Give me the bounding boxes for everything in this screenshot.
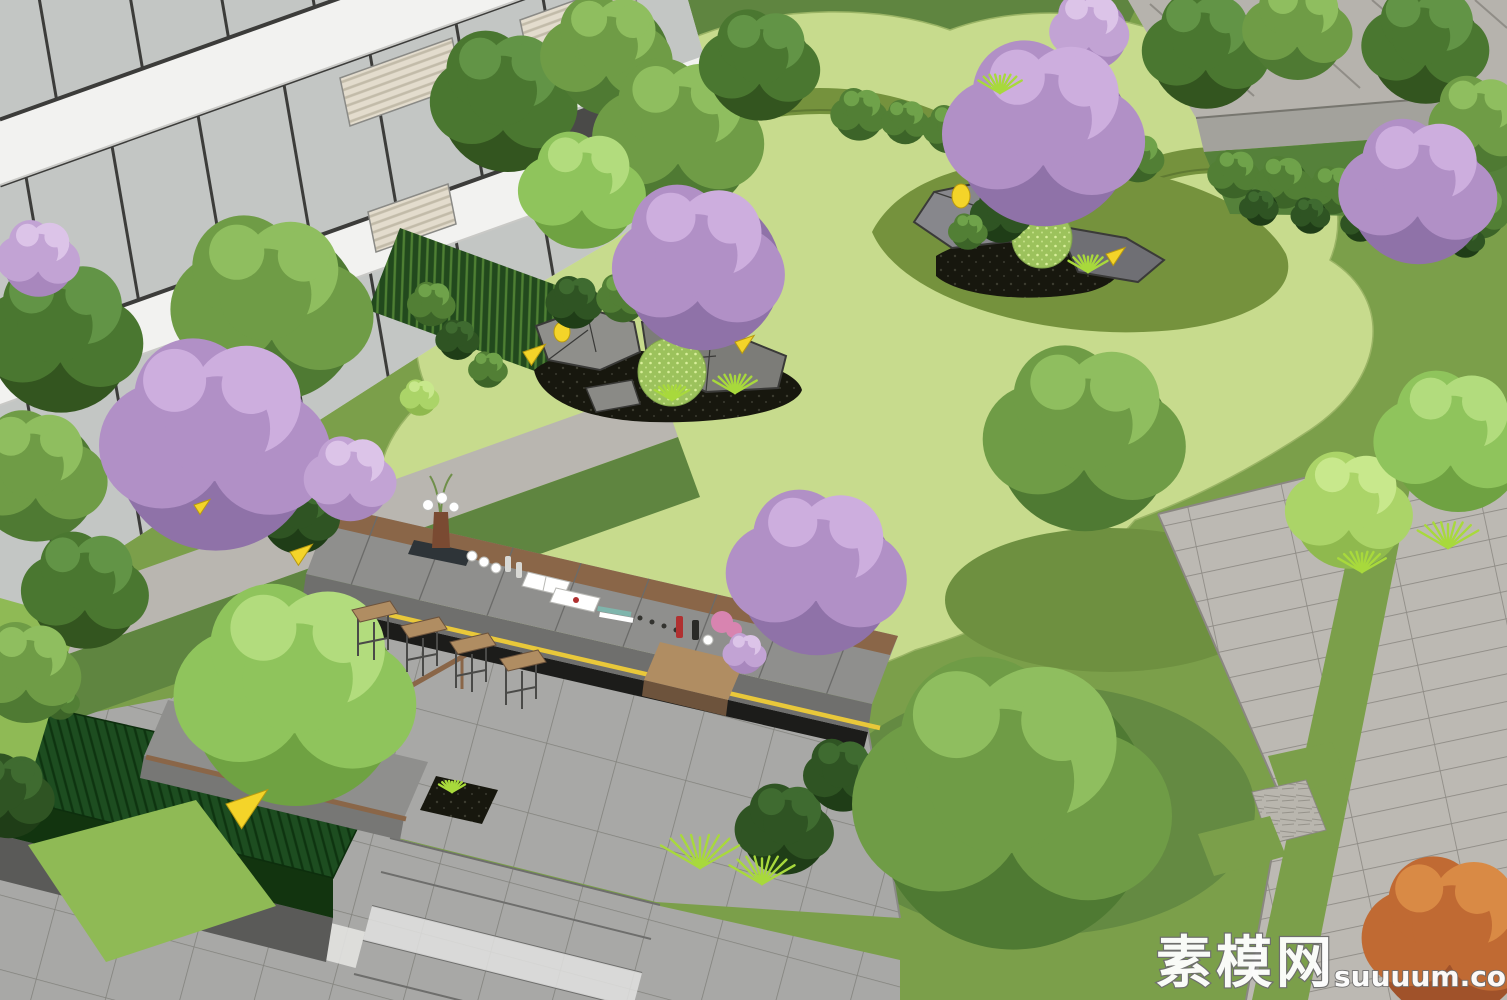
canopy [758,788,785,815]
canopy [1248,191,1259,202]
candle-jar [467,551,477,561]
canopy [863,92,878,107]
canopy [1395,864,1443,912]
canopy [446,322,458,334]
canopy [1318,168,1332,182]
canopy [708,198,754,244]
canopy [632,66,679,113]
canopy [1094,0,1115,20]
canopy [748,637,759,648]
canopy [1312,200,1322,210]
canopy [559,279,575,295]
canopy [1238,154,1251,167]
canopy [1262,192,1272,202]
canopy [1455,869,1500,914]
canopy [1285,160,1300,175]
canopy [357,443,381,467]
canopy [591,141,623,173]
canopy [325,441,350,466]
cup [703,635,713,645]
canopy [1058,55,1110,107]
candle-jar [491,563,501,573]
canopy [818,743,840,765]
canopy [844,91,860,107]
canopy [1449,81,1478,110]
canopy [1462,382,1501,421]
canopy [1266,159,1282,175]
canopy [1315,457,1350,492]
spotlight [952,184,970,208]
canopy [222,355,281,414]
canopy [489,354,499,364]
flower [449,502,459,512]
canopy [829,503,875,549]
canopy [461,323,472,334]
canopy [845,745,865,765]
canopy [409,381,420,392]
canopy [646,193,695,242]
canopy [476,353,487,364]
canopy [34,630,62,658]
canopy [913,671,1000,758]
canopy [733,636,745,648]
canopy [969,216,979,226]
flower [423,500,434,511]
counter-gadget [638,616,643,621]
canopy [957,215,968,226]
canopy [1030,355,1085,410]
book-detail [573,597,579,603]
canopy [578,280,593,295]
canopy [435,285,447,297]
vase [432,512,450,548]
canopy [616,4,650,38]
canopy [459,38,501,80]
watermark-en: suuuum.com [1334,960,1507,993]
canopy [890,102,903,115]
courtyard-render: 素模网 suuuum.com [0,0,1507,1000]
canopy [571,1,607,37]
canopy [1090,360,1142,412]
canopy [1298,199,1309,210]
canopy [230,595,296,661]
counter-gadget [650,620,655,625]
canopy [548,137,583,172]
canopy [40,421,76,457]
red-bottle [676,616,683,638]
canopy [1021,680,1102,761]
counter-gadget [662,624,667,629]
canopy [423,382,433,392]
canopy [16,224,39,247]
canopy [1410,378,1452,420]
dark-bottle [692,620,699,640]
canopy [727,15,760,48]
canopy [907,103,919,115]
canopy [143,349,206,412]
canopy [1220,152,1234,166]
canopy [1376,126,1419,169]
canopy [11,760,35,784]
canopy [278,230,330,282]
canopy [418,284,431,297]
canopy [45,537,80,572]
canopy [763,18,794,49]
canopy [768,498,817,547]
canopy [44,226,65,247]
candle-jar [479,557,489,567]
flower [437,493,448,504]
canopy [792,791,817,816]
canopy [1210,1,1242,33]
canopy [209,225,264,280]
canopy [65,273,107,315]
canopy [1429,130,1469,170]
canopy [89,541,121,573]
watermark-cn: 素模网 [1156,931,1336,996]
glass-bottle [505,556,511,572]
glass-bottle [516,562,522,578]
